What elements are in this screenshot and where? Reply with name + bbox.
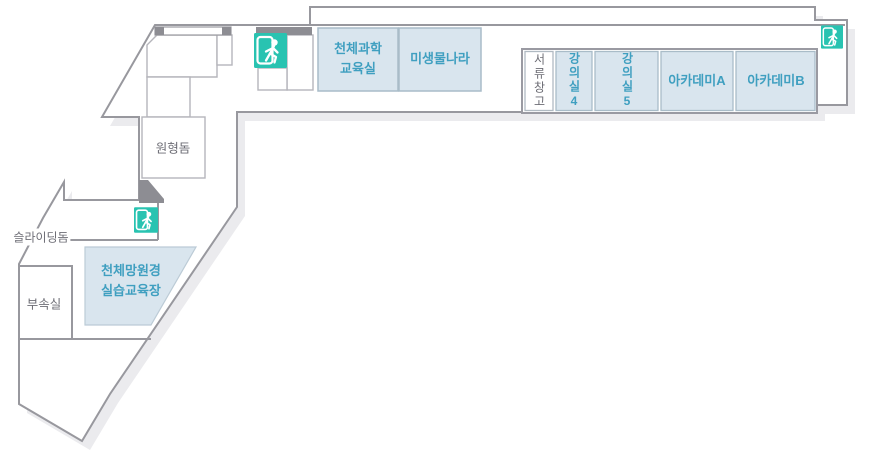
room-beside-exit: [287, 35, 313, 90]
room-astro-science-classroom: [318, 28, 398, 91]
emergency-exit-icon: [134, 207, 158, 232]
room-microbe-world: [399, 28, 481, 91]
room-lecture-5: [595, 52, 658, 111]
room-upper-left-a: [147, 35, 217, 77]
emergency-exit-icon: [254, 33, 287, 68]
room-document-storage: [525, 52, 553, 111]
floor-plan-canvas: 천체과학 교육실 미생물나라 서류창고 강의실4 강의실5 아카데미A 아카데미…: [0, 0, 869, 460]
room-upper-left-b: [147, 77, 190, 117]
room-below-exit: [258, 68, 287, 90]
room-academy-a: [661, 52, 733, 111]
emergency-exit-icon: [821, 25, 843, 48]
room-circular-dome: [142, 117, 205, 178]
room-lecture-4: [556, 52, 592, 111]
room-academy-b: [736, 52, 815, 111]
floor-plan-drawing: [0, 0, 869, 460]
room-upper-left-a2: [217, 35, 232, 65]
